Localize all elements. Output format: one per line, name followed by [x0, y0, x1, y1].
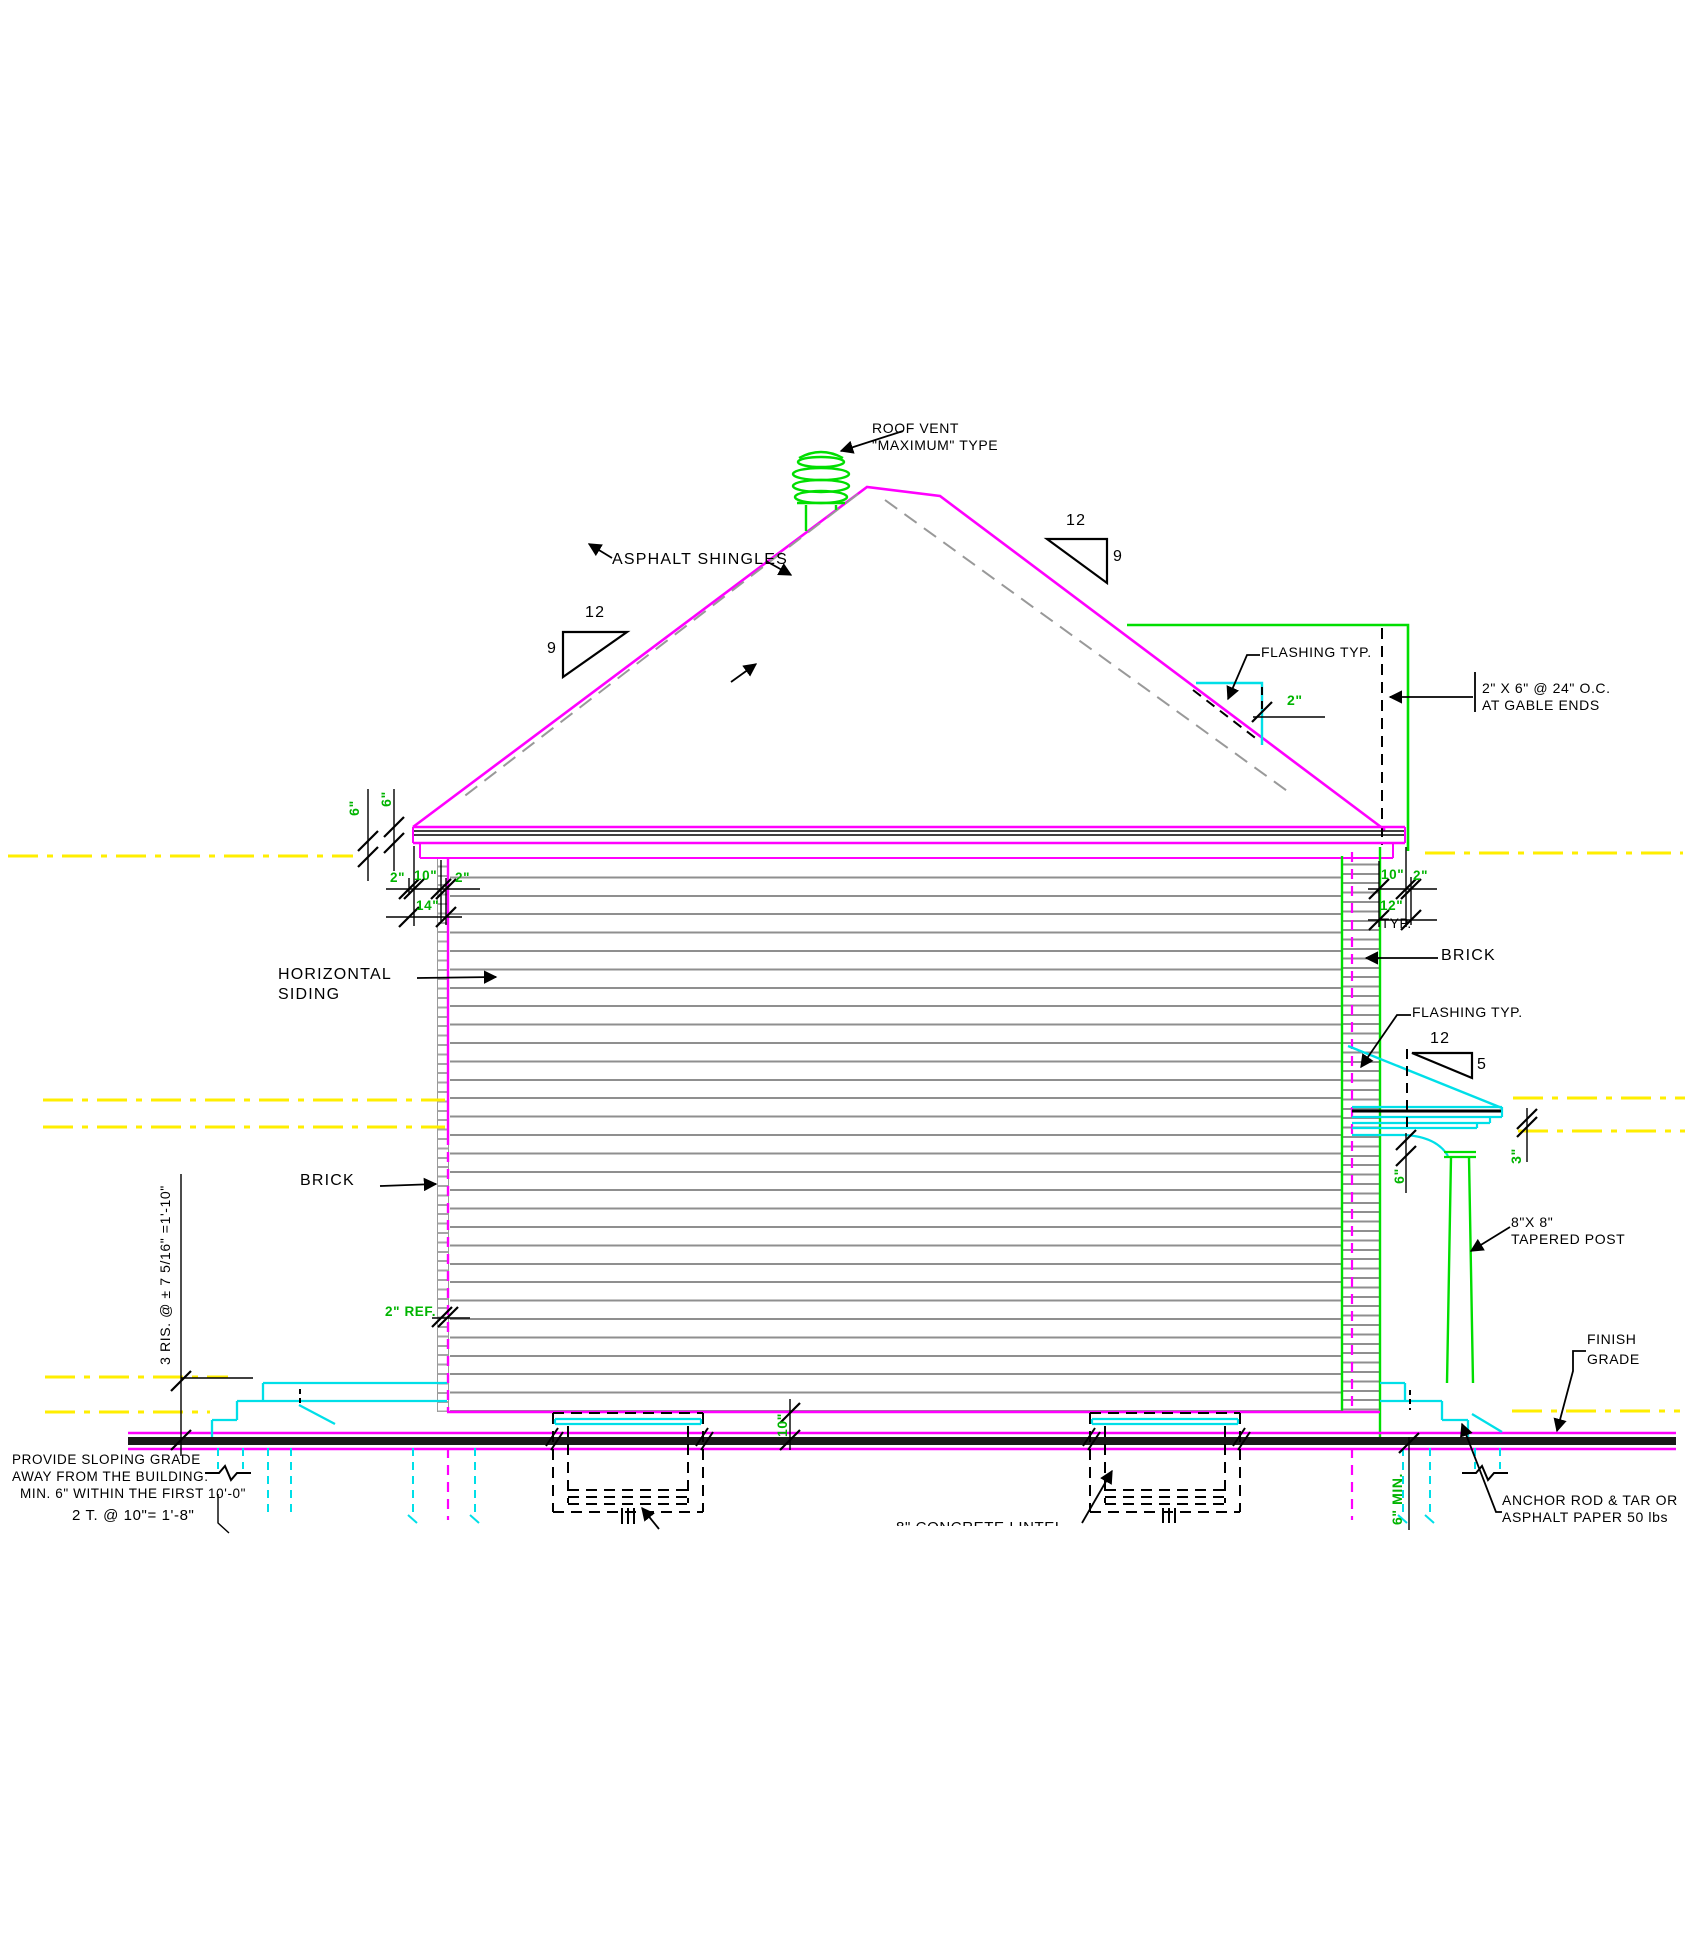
linework — [0, 0, 1689, 1936]
sloping-grade-note: PROVIDE SLOPING GRADE AWAY FROM THE BUIL… — [12, 1451, 246, 1502]
pitch-porch-run: 12 — [1430, 1030, 1450, 1047]
anchor-rod-note: ANCHOR ROD & TAR OR ASPHALT PAPER 50 lbs — [1502, 1492, 1678, 1526]
dimension-ticks — [171, 702, 1537, 1453]
lintel-note-clipped: 8" CONCRETE LINTEL — [896, 1519, 1066, 1526]
dim-eave-2a: 2" — [390, 869, 405, 886]
gable-end-note: 2" X 6" @ 24" O.C. AT GABLE ENDS — [1482, 680, 1611, 714]
footing-lines — [218, 1448, 1500, 1515]
dim-eave-10: 10" — [414, 867, 437, 884]
roof-vent — [793, 452, 849, 531]
dim-foundation-10: 10" — [773, 1407, 791, 1443]
dim-eave-right-10: 10" — [1381, 866, 1404, 883]
pitch-right-rise: 9 — [1113, 548, 1123, 565]
tapered-post-label: 8"X 8" TAPERED POST — [1511, 1214, 1625, 1248]
dim-eave-6a: 6" — [345, 796, 363, 820]
pitch-left-rise: 9 — [547, 640, 557, 657]
brick-left-label: BRICK — [300, 1172, 355, 1189]
pitch-porch-rise: 5 — [1477, 1056, 1487, 1073]
datum-lines — [8, 853, 1685, 1412]
dim-eave-6b: 6" — [377, 787, 395, 811]
window-wells — [546, 1413, 1250, 1524]
steps — [212, 1383, 1502, 1437]
grade-line — [128, 1433, 1676, 1449]
flashing-porch-label: FLASHING TYP. — [1412, 1004, 1523, 1021]
dimension-lines — [181, 717, 1527, 1533]
pitch-symbols — [563, 539, 1472, 1078]
dim-eave-right-2: 2" — [1413, 867, 1428, 884]
dim-eave-14: 14" — [416, 897, 439, 914]
roof-vent-label: ROOF VENT "MAXIMUM" TYPE — [872, 420, 998, 454]
brick-right-label: BRICK — [1441, 947, 1496, 964]
elevation-drawing: ROOF VENT "MAXIMUM" TYPE ASPHALT SHINGLE… — [0, 0, 1689, 1936]
dim-flashing-2: 2" — [1287, 692, 1303, 709]
dim-2-ref: 2" REF. — [385, 1303, 436, 1320]
break-marks — [205, 1389, 1508, 1480]
flashing-roof-label: FLASHING TYP. — [1261, 644, 1372, 661]
pitch-left-run: 12 — [585, 604, 605, 621]
six-min-note: 6" MIN. — [1388, 1465, 1406, 1533]
asphalt-shingles-label: ASPHALT SHINGLES — [612, 551, 788, 568]
porch-roof — [1348, 1046, 1502, 1383]
dim-eave-right-typ: TYP. — [1381, 915, 1412, 932]
finish-grade-label: FINISH GRADE — [1587, 1329, 1640, 1369]
treads-note: 2 T. @ 10"= 1'-8" — [72, 1507, 194, 1524]
dim-porch-6: 6" — [1390, 1164, 1408, 1188]
pitch-right-run: 12 — [1066, 512, 1086, 529]
dim-eave-right-12: 12" — [1380, 897, 1403, 914]
dim-eave-2b: 2" — [455, 869, 470, 886]
dim-porch-3: 3" — [1507, 1144, 1525, 1168]
leader-arrows — [380, 431, 1586, 1529]
horizontal-siding-label: HORIZONTAL SIDING — [278, 965, 392, 1005]
risers-note: 3 RIS. @ ± 7 5/16" =1'-10" — [156, 1140, 174, 1410]
